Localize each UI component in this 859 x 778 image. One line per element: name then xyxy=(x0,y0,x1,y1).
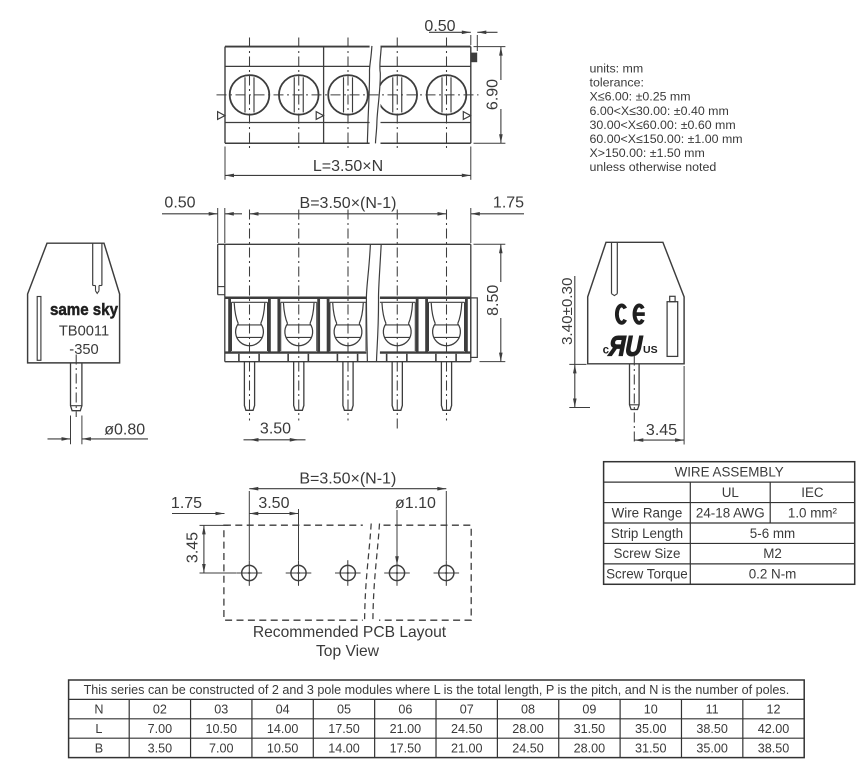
svg-text:Top View: Top View xyxy=(316,643,380,660)
svg-text:14.00: 14.00 xyxy=(267,722,299,736)
svg-text:17.50: 17.50 xyxy=(390,741,422,755)
svg-text:09: 09 xyxy=(582,703,596,717)
svg-text:24.50: 24.50 xyxy=(451,722,483,736)
svg-text:42.00: 42.00 xyxy=(758,722,790,736)
svg-text:L: L xyxy=(95,722,102,736)
svg-text:X>150.00: ±1.50 mm: X>150.00: ±1.50 mm xyxy=(590,146,705,160)
svg-text:-350: -350 xyxy=(69,342,98,358)
svg-text:Recommended PCB Layout: Recommended PCB Layout xyxy=(253,624,447,641)
svg-text:1.75: 1.75 xyxy=(493,195,524,212)
svg-text:28.00: 28.00 xyxy=(512,722,544,736)
svg-text:5-6 mm: 5-6 mm xyxy=(750,526,795,541)
svg-text:3.50: 3.50 xyxy=(260,421,291,438)
svg-text:Screw Size: Screw Size xyxy=(613,546,680,561)
svg-text:0.2 N-m: 0.2 N-m xyxy=(749,567,797,582)
svg-text:21.00: 21.00 xyxy=(390,722,422,736)
svg-text:28.00: 28.00 xyxy=(574,741,606,755)
svg-text:02: 02 xyxy=(153,703,167,717)
svg-text:same sky: same sky xyxy=(50,300,118,319)
svg-text:12: 12 xyxy=(767,703,781,717)
svg-text:US: US xyxy=(643,344,658,356)
svg-text:UL: UL xyxy=(722,485,739,500)
svg-text:6.00<X≤30.00: ±0.40 mm: 6.00<X≤30.00: ±0.40 mm xyxy=(590,104,729,118)
svg-text:X≤6.00: ±0.25 mm: X≤6.00: ±0.25 mm xyxy=(590,90,691,104)
svg-text:B=3.50×(N-1): B=3.50×(N-1) xyxy=(299,470,396,487)
svg-text:14.00: 14.00 xyxy=(328,741,360,755)
svg-text:10: 10 xyxy=(644,703,658,717)
svg-text:8.50: 8.50 xyxy=(485,285,502,316)
svg-text:tolerance:: tolerance: xyxy=(590,76,644,90)
svg-text:30.00<X≤60.00: ±0.60 mm: 30.00<X≤60.00: ±0.60 mm xyxy=(590,118,736,132)
svg-text:7.00: 7.00 xyxy=(148,722,173,736)
svg-text:units: mm: units: mm xyxy=(590,62,644,76)
svg-text:05: 05 xyxy=(337,703,351,717)
svg-text:TB0011: TB0011 xyxy=(59,324,109,340)
svg-text:0.50: 0.50 xyxy=(164,195,195,212)
svg-text:Wire Range: Wire Range xyxy=(612,505,683,520)
svg-text:3.50: 3.50 xyxy=(148,741,173,755)
svg-text:24.50: 24.50 xyxy=(512,741,544,755)
svg-text:08: 08 xyxy=(521,703,535,717)
svg-text:c: c xyxy=(603,344,610,356)
svg-text:17.50: 17.50 xyxy=(328,722,360,736)
svg-text:3.45: 3.45 xyxy=(185,532,202,563)
svg-text:6.90: 6.90 xyxy=(484,79,501,110)
svg-text:1.75: 1.75 xyxy=(171,495,202,512)
svg-text:24-18 AWG: 24-18 AWG xyxy=(696,505,765,520)
svg-text:3.50: 3.50 xyxy=(258,495,289,512)
svg-text:L=3.50×N: L=3.50×N xyxy=(313,158,383,175)
svg-text:10.50: 10.50 xyxy=(205,722,237,736)
svg-text:1.0 mm²: 1.0 mm² xyxy=(788,505,838,520)
svg-text:3.45: 3.45 xyxy=(646,422,677,439)
svg-text:3.40±0.30: 3.40±0.30 xyxy=(559,278,576,345)
svg-text:unless otherwise noted: unless otherwise noted xyxy=(590,160,717,174)
svg-text:ø1.10: ø1.10 xyxy=(395,495,436,512)
svg-text:B: B xyxy=(95,741,103,755)
svg-text:WIRE ASSEMBLY: WIRE ASSEMBLY xyxy=(675,465,784,480)
svg-text:35.00: 35.00 xyxy=(635,722,667,736)
svg-text:60.00<X≤150.00: ±1.00 mm: 60.00<X≤150.00: ±1.00 mm xyxy=(590,132,743,146)
svg-text:7.00: 7.00 xyxy=(209,741,234,755)
svg-text:04: 04 xyxy=(276,703,290,717)
svg-text:M2: M2 xyxy=(763,546,782,561)
svg-text:B=3.50×(N-1): B=3.50×(N-1) xyxy=(300,195,397,212)
svg-text:21.00: 21.00 xyxy=(451,741,483,755)
svg-text:03: 03 xyxy=(214,703,228,717)
svg-text:10.50: 10.50 xyxy=(267,741,299,755)
svg-text:06: 06 xyxy=(398,703,412,717)
svg-text:31.50: 31.50 xyxy=(574,722,606,736)
svg-text:ø0.80: ø0.80 xyxy=(104,422,145,439)
svg-text:38.50: 38.50 xyxy=(758,741,790,755)
svg-text:11: 11 xyxy=(706,703,719,717)
svg-text:This series can be constructed: This series can be constructed of 2 and … xyxy=(84,683,790,697)
svg-text:38.50: 38.50 xyxy=(696,722,728,736)
svg-text:Strip Length: Strip Length xyxy=(611,526,683,541)
svg-text:35.00: 35.00 xyxy=(696,741,728,755)
svg-text:ЯU: ЯU xyxy=(606,332,645,362)
svg-text:Screw Torque: Screw Torque xyxy=(606,567,688,582)
svg-text:07: 07 xyxy=(460,703,474,717)
svg-text:N: N xyxy=(94,703,103,717)
svg-text:IEC: IEC xyxy=(801,485,824,500)
svg-text:31.50: 31.50 xyxy=(635,741,667,755)
